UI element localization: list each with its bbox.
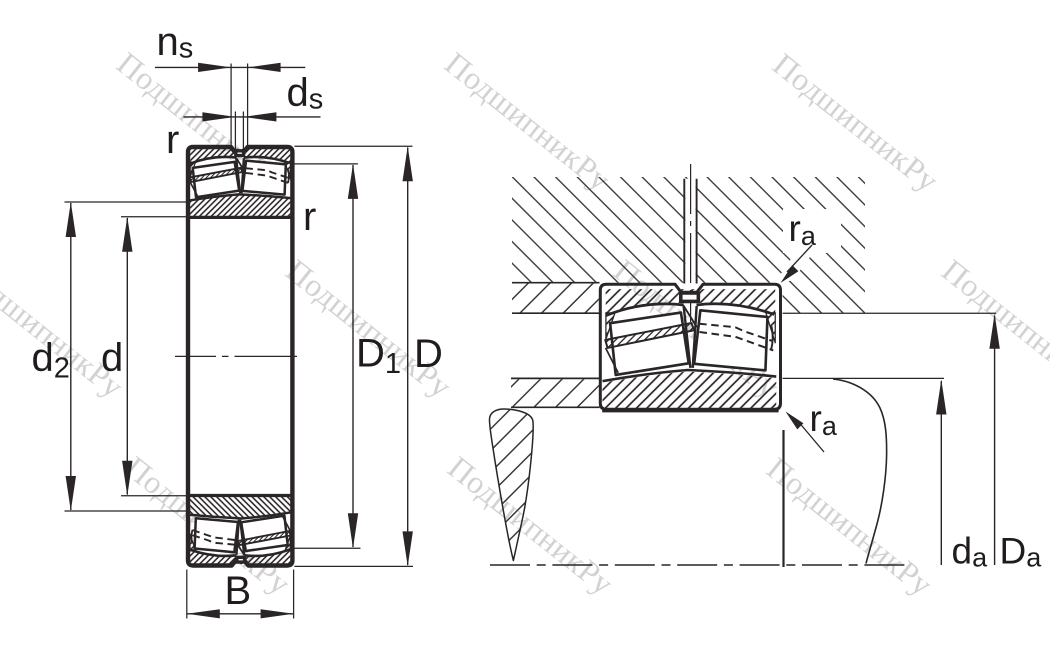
svg-text:d: d <box>101 336 123 380</box>
svg-text:B: B <box>225 569 252 613</box>
svg-text:D: D <box>414 332 443 376</box>
svg-text:r: r <box>166 118 179 162</box>
svg-text:r: r <box>303 195 316 239</box>
